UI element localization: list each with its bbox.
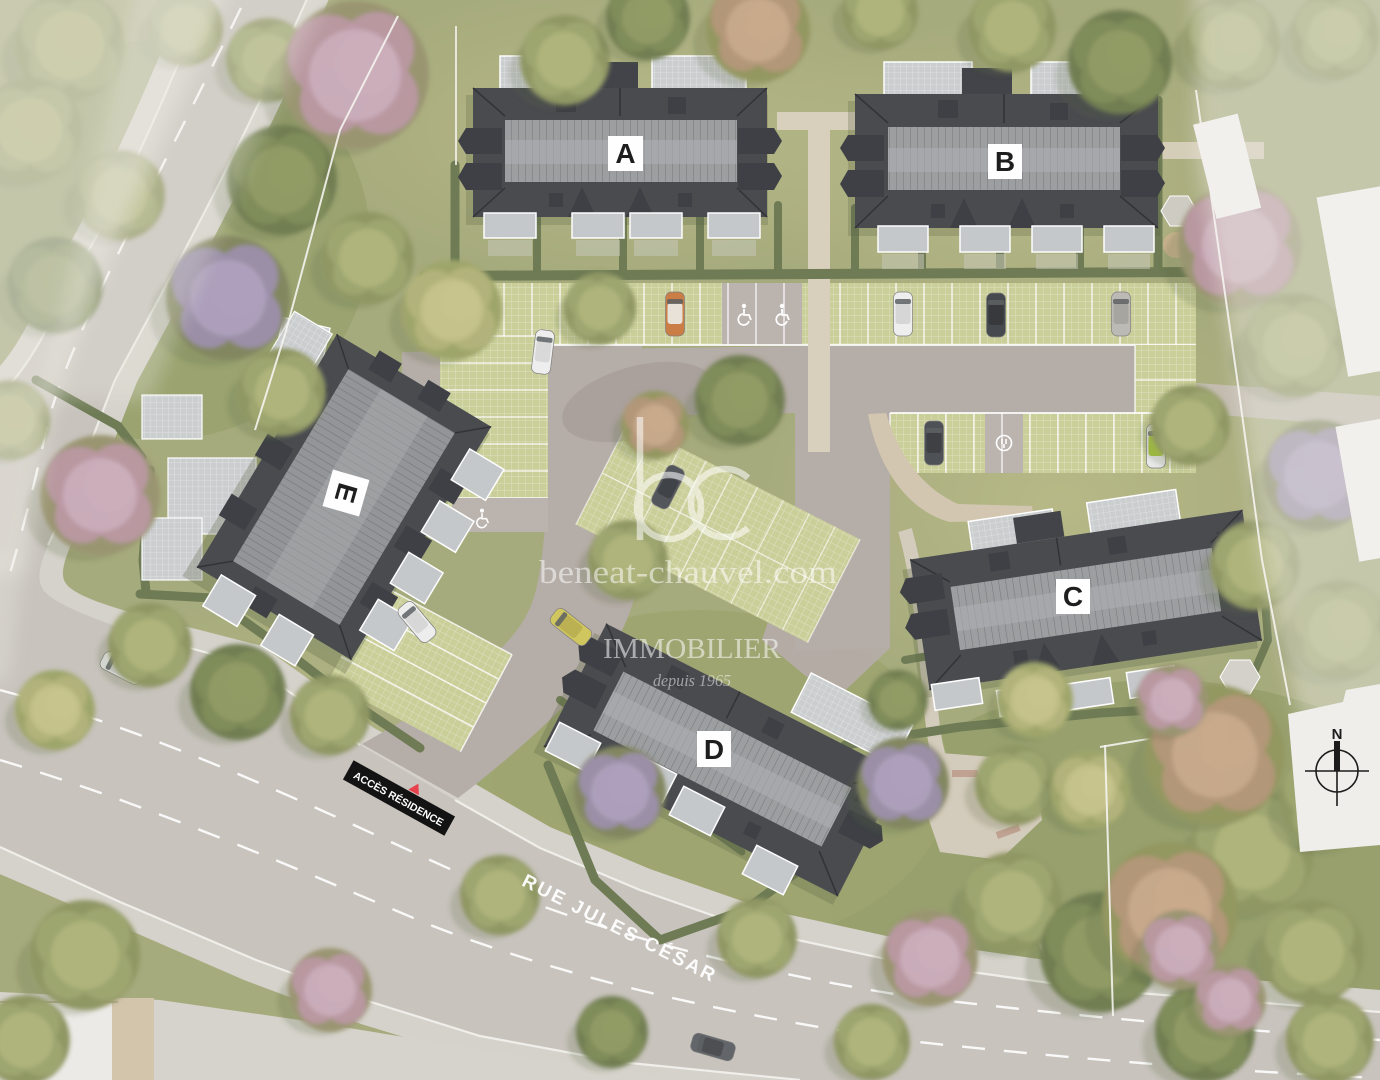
svg-text:N: N xyxy=(1332,726,1343,743)
svg-text:depuis 1965: depuis 1965 xyxy=(653,671,731,690)
svg-text:beneat-chauvel.com: beneat-chauvel.com xyxy=(539,555,837,591)
svg-text:IMMOBILIER: IMMOBILIER xyxy=(603,633,782,665)
